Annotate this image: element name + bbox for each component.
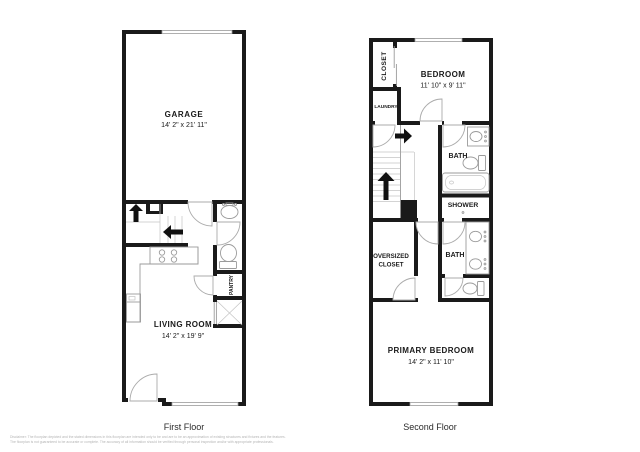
stairs-up-arrow-icon bbox=[378, 172, 395, 181]
closet-label: CLOSET bbox=[381, 51, 388, 80]
hall-door-icon bbox=[416, 222, 438, 244]
first-floor-plan: GARAGE 14' 2" x 21' 11" LIVING ROOM 14' … bbox=[122, 30, 246, 406]
closet-sliding-door-icon bbox=[394, 46, 396, 86]
garage-entry-door-icon bbox=[188, 202, 212, 226]
living-room-dims: 14' 2" x 19' 9" bbox=[162, 333, 205, 340]
shower-label: SHOWER bbox=[448, 202, 479, 209]
bedroom-dims: 11' 10" x 9' 11" bbox=[420, 83, 466, 90]
upper-bath-sink-icon bbox=[468, 127, 490, 146]
refrigerator-icon bbox=[127, 294, 141, 322]
garage-dims: 14' 2" x 21' 11" bbox=[161, 122, 207, 129]
garage-label: GARAGE bbox=[165, 110, 204, 119]
oversized-closet-label-line1: OVERSIZED bbox=[373, 253, 409, 260]
first-floor-caption: First Floor bbox=[164, 422, 205, 432]
toilet-icon bbox=[220, 245, 237, 269]
floor-plan-drawing: GARAGE 14' 2" x 21' 11" LIVING ROOM 14' … bbox=[0, 0, 640, 452]
living-room-window bbox=[172, 403, 238, 406]
bedroom-label: BEDROOM bbox=[421, 70, 466, 79]
bath-door-icon bbox=[217, 222, 240, 245]
stairs-left-arrow-icon bbox=[163, 225, 171, 239]
disclaimer-line-1: Disclaimer: The floorplan depicted and t… bbox=[10, 435, 286, 439]
primary-bedroom-window bbox=[410, 403, 458, 406]
laundry-door-icon bbox=[373, 125, 395, 147]
laundry-label: LAUNDRY bbox=[374, 104, 398, 110]
stairs-right-arrow-icon bbox=[404, 129, 412, 144]
pantry-label: PANTRY bbox=[229, 274, 235, 295]
disclaimer-line-2: The floorplan is not guaranteed to be ac… bbox=[10, 440, 274, 444]
floor-plan-page: GARAGE 14' 2" x 21' 11" LIVING ROOM 14' … bbox=[0, 0, 640, 452]
primary-bedroom-dims: 14' 2" x 11' 10" bbox=[408, 359, 454, 366]
lower-bath-door-icon bbox=[443, 222, 465, 244]
second-floor-plan: CLOSET LAUNDRY BEDROOM 11' 10" x 9' 11" … bbox=[369, 38, 493, 406]
bathtub-icon bbox=[443, 173, 490, 192]
bedroom-window bbox=[415, 39, 462, 42]
garage-door-window bbox=[162, 31, 232, 34]
second-floor-caption: Second Floor bbox=[403, 422, 457, 432]
bath-sink-icon bbox=[221, 203, 238, 219]
shower-drain-icon bbox=[462, 212, 464, 214]
oversized-closet-label-line2: CLOSET bbox=[378, 262, 403, 269]
bedroom-door-icon bbox=[420, 99, 442, 121]
pantry-door-icon bbox=[194, 276, 213, 295]
upper-bath-label: BATH bbox=[449, 153, 468, 160]
lower-toilet-icon bbox=[463, 282, 484, 296]
kitchen-counter-icon bbox=[126, 247, 198, 322]
upper-bath-door-icon bbox=[443, 125, 465, 147]
front-door-icon bbox=[130, 374, 157, 401]
living-room-label: LIVING ROOM bbox=[154, 320, 212, 329]
storage-closet-icon bbox=[214, 301, 242, 325]
stairs-up-arrow-icon bbox=[129, 204, 143, 211]
primary-bedroom-label: PRIMARY BEDROOM bbox=[388, 346, 474, 355]
water-closet-door-icon bbox=[445, 278, 463, 296]
lower-bath-label: BATH bbox=[446, 252, 465, 259]
stove-icon bbox=[150, 247, 198, 264]
double-vanity-icon bbox=[466, 222, 489, 274]
oversized-closet-door-icon bbox=[393, 278, 415, 300]
